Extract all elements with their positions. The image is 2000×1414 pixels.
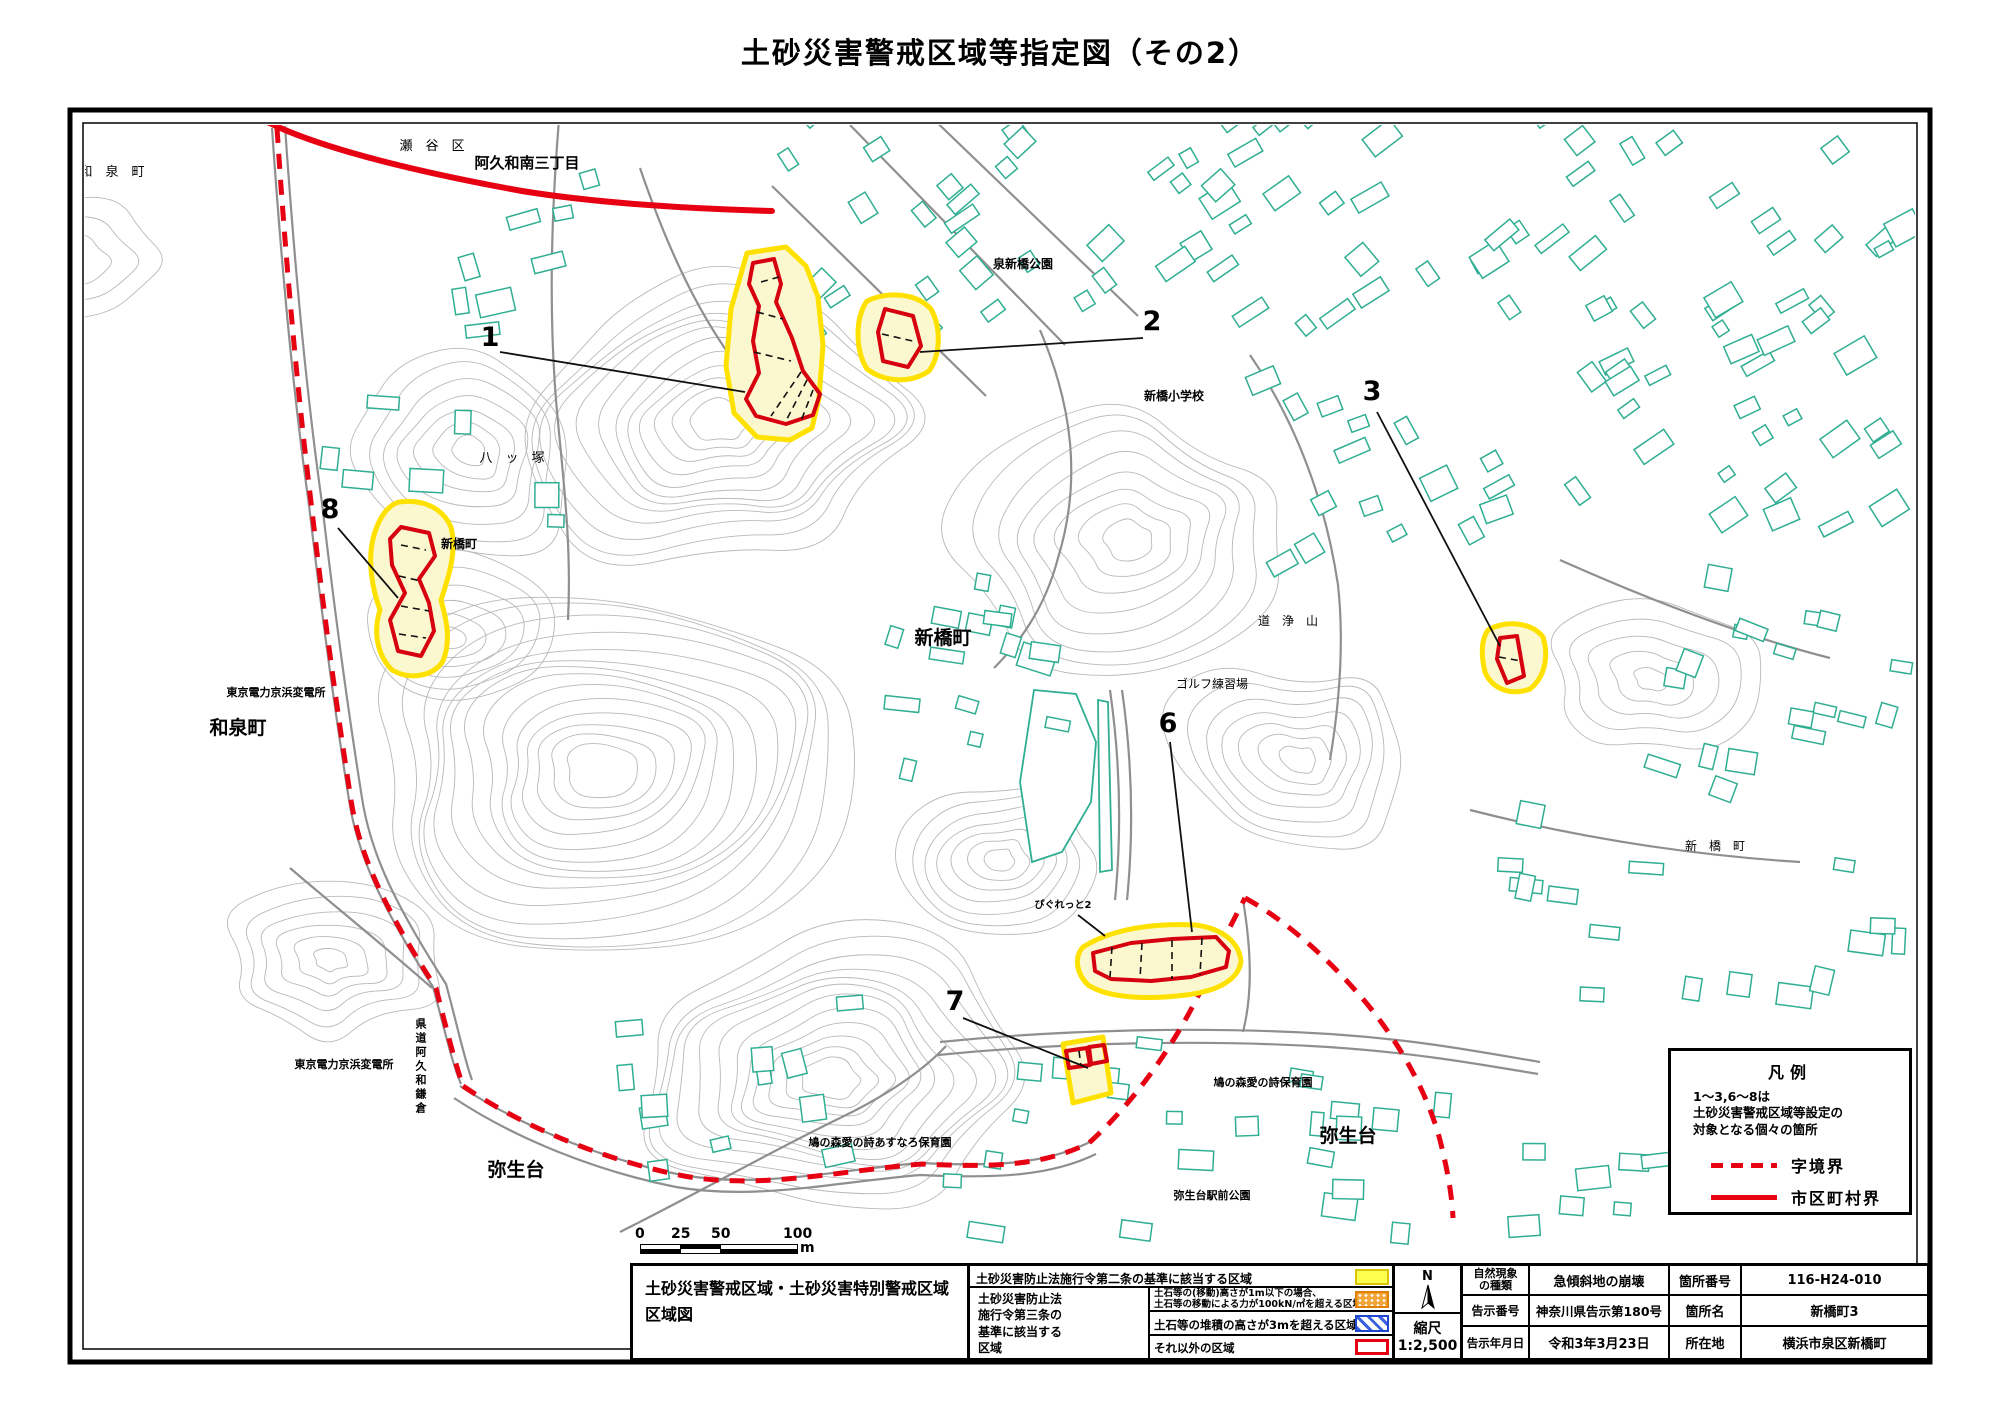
building-rect [1810,966,1835,995]
nat-phenomenon-value: 急傾斜地の崩壊 [1530,1266,1670,1296]
building-rect [1157,87,1180,110]
building-outline [1017,1062,1042,1081]
aza-boundary-sample [1711,1163,1777,1168]
building-rect [1734,396,1760,418]
contour-line [555,313,895,523]
building-rect [1817,610,1840,631]
site-name-value: 新橋町3 [1742,1296,1927,1327]
building-rect [1751,207,1780,233]
building-outline [1235,1116,1258,1136]
building-rect [1575,1165,1610,1190]
building-rect [1727,972,1752,997]
building-outline [1767,231,1795,256]
building-outline [1253,113,1278,136]
building-outline [981,299,1006,322]
building-outline [1148,157,1174,180]
building-outline [1295,315,1316,337]
building-rect [1498,858,1523,873]
contour-line [942,404,1279,675]
building-outline [974,573,990,591]
map-label-shinbashicho-east: 新 橋 町 [1685,838,1745,853]
building-outline [1566,161,1594,186]
contour-line [378,597,854,950]
info-table: 土砂災害警戒区域・土砂災害特別警戒区域 区域図 土砂災害防止法施行令第二条の基準… [630,1263,1930,1361]
building-outline [799,1094,826,1122]
building-outline [1682,976,1702,1001]
building-rect [1614,1202,1632,1216]
building-rect [1299,101,1328,128]
building-outline [1245,366,1280,395]
contour-line [968,840,1030,881]
building-rect [1228,138,1263,167]
hazard-zone-3 [1482,624,1545,692]
building-outline [641,1094,668,1118]
building-outline [1136,1037,1162,1051]
zone-marker-7: 7 [946,986,965,1017]
building-outline [884,695,920,712]
building-rect [367,395,400,410]
building-outline [1263,176,1301,211]
building-outline [1480,450,1502,472]
building-outline [1297,80,1329,112]
building-outline [1228,138,1263,167]
building-rect [1420,465,1458,501]
building-outline [1709,776,1737,803]
building-rect [1332,1179,1363,1199]
map-label-pigretto: ぴぐれっと2 [1035,898,1092,911]
building-outline [579,169,599,190]
notice-number-value: 神奈川県告示第180号 [1530,1296,1670,1327]
building-outline [983,610,1012,627]
building-rect [1320,191,1345,215]
building-outline [885,626,904,649]
building-rect [1535,224,1569,253]
building-rect [1564,126,1594,156]
building-rect [1718,466,1735,483]
contour-line [1017,451,1226,634]
building-rect [1334,437,1370,463]
building-outline [1820,420,1860,458]
building-outline [1416,261,1440,286]
contour-line [402,603,828,947]
building-outline [1391,1222,1410,1244]
map-label-akuwa-minami: 阿久和南三丁目 [474,154,579,172]
contour-line [246,896,419,1027]
contour-line [424,632,808,924]
building-rect [1813,702,1837,717]
building-outline [967,1221,1005,1242]
building-rect [1345,242,1379,276]
building-rect [476,287,516,317]
building-rect [1311,491,1337,516]
building-outline [1817,610,1840,631]
building-outline [911,201,936,227]
building-rect [1792,725,1826,744]
hazard-zone-1 [726,247,823,440]
building-rect [1710,183,1740,209]
building-rect [1351,182,1389,213]
road-line [1122,690,1131,900]
building-outline [1751,207,1780,233]
warning-area-polygon [726,247,823,440]
building-outline [1813,702,1837,717]
building-outline [1709,497,1748,533]
building-rect [1229,215,1251,234]
building-rect [1682,976,1702,1001]
north-label: N [1422,1269,1433,1284]
map-label-yayoidai-west: 弥生台 [487,1158,544,1181]
building-outline [1170,173,1191,193]
building-rect [553,205,574,221]
building-outline [1420,465,1458,501]
building-rect [1709,776,1737,803]
building-rect [1704,564,1732,591]
map-label-kendo-akuwa-kamakura: 県道阿久和鎌倉 [412,1018,428,1116]
building-rect [1515,873,1536,901]
building-outline [455,410,472,434]
site-number-value: 116-H24-010 [1742,1266,1927,1296]
map-label-izumicho-top: 和 泉 町 [79,164,144,180]
building-outline [1166,1111,1182,1124]
contour-line [294,937,368,984]
building-outline [1876,703,1898,728]
building-outline [1446,87,1470,110]
building-outline [531,251,566,274]
contour-line [984,849,1015,871]
building-rect [1774,643,1796,659]
map-label-hatonomori-nursery: 鳩の森愛の詩保育園 [1214,1075,1313,1089]
building-rect [1156,246,1196,281]
legend-title: 凡例 [1671,1059,1909,1083]
building-outline [1229,215,1251,234]
contour-line [753,1023,909,1126]
building-rect [1263,176,1301,211]
building-rect [884,695,920,712]
building-rect [955,696,979,714]
hazard-zone-8 [371,501,453,675]
building-rect [1508,1215,1540,1238]
building-rect [1317,396,1343,417]
building-outline [320,447,339,471]
building-rect [981,299,1006,322]
building-outline [1575,1165,1610,1190]
building-outline [943,1174,961,1188]
building-rect [1029,642,1060,663]
building-rect [1645,365,1671,385]
building-outline [1267,95,1306,132]
building-rect [1353,277,1389,308]
building-rect [799,1094,826,1122]
building-outline [535,483,559,508]
swatch-debris-height [1355,1315,1389,1332]
contour-line [484,674,734,872]
building-rect [1253,113,1278,136]
building-rect [782,1048,808,1078]
notice-date-header: 告示年月日 [1460,1327,1530,1358]
building-outline [1516,801,1545,829]
building-rect [1416,261,1440,286]
building-rect [1752,425,1773,446]
building-rect [1776,982,1814,1008]
building-rect [1630,302,1655,328]
building-outline [1564,126,1594,156]
building-rect [1245,366,1280,395]
zone-marker-6: 6 [1159,708,1178,739]
building-outline [342,470,374,490]
building-outline [1000,633,1021,658]
building-outline [1320,299,1355,329]
sheet-title-line2: 区域図 [645,1302,955,1328]
building-rect [1656,130,1682,155]
building-rect [1320,299,1355,329]
building-outline [476,287,516,317]
aza-boundary-label: 字境界 [1791,1153,1845,1177]
building-outline [1508,1215,1540,1238]
building-outline [1821,136,1849,164]
building-rect [1712,320,1729,337]
scale-value: 1:2,500 [1398,1338,1458,1354]
map-label-shinbashi-elementary: 新橋小学校 [1144,388,1205,403]
building-outline [1565,477,1591,506]
building-rect [1178,1149,1214,1170]
building-outline [1480,495,1514,524]
building-rect [615,1019,643,1037]
building-outline [1869,489,1909,526]
map-label-shinbashicho-center: 新橋町 [914,626,971,649]
building-rect [915,276,938,300]
building-rect [1307,1148,1334,1168]
building-outline [1776,289,1809,313]
building-rect [864,137,890,162]
contour-line [1187,683,1384,837]
building-outline [1523,1144,1545,1160]
building-rect [1523,1144,1545,1160]
building-outline [1351,182,1389,213]
building-rect [452,287,469,314]
building-rect [1634,429,1674,464]
building-rect [531,251,566,274]
building-outline [1776,982,1814,1008]
contour-line [450,661,777,889]
building-outline [929,647,964,664]
legend-law2-text: 土砂災害防止法施行令第二条の基準に該当する区域 [970,1266,1392,1287]
building-rect [1767,231,1795,256]
road-line [1243,900,1250,1032]
location-value: 横浜市泉区新橋町 [1742,1327,1927,1358]
building-rect [1589,924,1620,940]
hazard-zone-6 [1077,925,1241,998]
building-outline [1458,516,1484,544]
building-outline [1535,224,1569,253]
building-outline [1498,858,1523,873]
building-outline [1569,236,1606,271]
building-outline [1362,119,1402,157]
building-rect [899,758,916,781]
contour-line [0,197,162,321]
map-label-shinbashicho-nw: 新橋町 [441,536,477,551]
building-outline [1299,101,1328,128]
building-rect [911,201,936,227]
building-outline [1890,660,1913,674]
building-outline [1345,242,1379,276]
building-outline [452,287,469,314]
building-rect [579,169,599,190]
building-rect [1819,511,1854,537]
notice-number-header: 告示番号 [1460,1296,1530,1327]
golf-range-outline [1020,690,1096,862]
building-outline [1630,302,1655,328]
contour-line [802,1057,860,1099]
building-outline [1792,725,1826,744]
building-rect [1565,477,1591,506]
aza-boundary-line-southeast [1245,898,1453,1218]
contour-line [314,948,348,971]
building-outline [1704,564,1732,591]
building-rect [535,483,559,508]
building-rect [548,514,565,527]
building-rect [1017,1062,1042,1081]
scale-label: 縮尺 [1414,1318,1442,1338]
building-outline [1783,409,1802,426]
building-rect [929,647,964,664]
site-name-header: 箇所名 [1670,1296,1742,1327]
building-rect [1580,987,1604,1002]
map-legend-box: 凡例 1～3,6～8は 土砂災害警戒区域等設定の 対象となる個々の箇所 字境界 … [1668,1048,1912,1215]
building-rect [1092,267,1116,293]
contour-line [502,684,717,862]
building-outline [1232,297,1269,327]
building-rect [1566,161,1594,186]
building-rect [1207,255,1238,282]
building-outline [1838,711,1866,728]
contour-line [511,698,705,849]
site-number-header: 箇所番号 [1670,1266,1742,1296]
building-outline [836,995,863,1011]
road-line [1560,560,1830,658]
building-rect [995,157,1017,179]
building-outline [1610,194,1634,222]
scale-tick-0: 0 [635,1226,645,1242]
building-outline [751,1047,774,1072]
contour-line [1078,504,1170,577]
building-rect [1699,743,1718,769]
building-outline [409,468,444,492]
scale-bar: 0 25 50 100 m [628,1226,828,1260]
building-outline [1656,130,1682,155]
building-outline [915,276,938,300]
building-rect [506,209,540,230]
contour-line [1588,636,1719,718]
building-outline [1614,1202,1632,1216]
road-line [552,108,569,620]
nat-phenomenon-header-l2: の種類 [1479,1280,1512,1292]
leader-line-2 [920,338,1143,352]
building-outline [1580,987,1604,1002]
map-label-tepco-north: 東京電力京浜変電所 [227,685,326,699]
building-outline [1394,416,1418,444]
building-rect [1087,225,1124,262]
building-rect [1821,136,1849,164]
building-outline [548,514,565,527]
building-outline [1833,858,1855,873]
building-outline [1348,415,1370,433]
building-outline [553,205,574,221]
map-label-ekimae-park: 弥生台駅前公園 [1174,1188,1251,1202]
contour-line [1258,734,1331,784]
building-outline [1334,437,1370,463]
building-outline [1589,924,1620,940]
building-rect [1498,295,1521,320]
building-outline [1834,336,1877,375]
legend-law3-line1: 土砂災害防止法 [978,1291,1148,1307]
map-label-golf-range: ゴルフ練習場 [1176,676,1248,691]
leader-line-pigretto [1078,915,1105,936]
contour-line [1634,668,1668,691]
building-rect [1569,236,1606,271]
building-outline [864,137,890,162]
building-outline [1074,290,1095,311]
building-outline [1294,533,1324,563]
scale-tick-25: 25 [671,1226,690,1242]
building-rect [458,253,480,281]
building-outline [1142,91,1169,119]
building-rect [1362,119,1402,157]
building-rect [1876,703,1898,728]
building-rect [778,148,799,171]
building-outline [1629,861,1664,875]
building-outline [1774,643,1796,659]
building-outline [1029,642,1060,663]
map-label-tepco-south: 東京電力京浜変電所 [295,1057,394,1071]
building-outline [1485,219,1519,251]
building-rect [751,1047,774,1072]
building-outline [1320,191,1345,215]
zone-marker-8: 8 [321,494,340,525]
building-outline [1732,93,1757,120]
building-outline [1765,473,1797,503]
building-outline [615,1019,643,1037]
building-outline [968,731,983,747]
building-outline [1178,1149,1214,1170]
building-outline [1387,524,1407,542]
building-rect [1618,399,1640,419]
sheet-title-line1: 土砂災害警戒区域・土砂災害特別警戒区域 [645,1276,955,1302]
building-outline [1734,396,1760,418]
building-outline [931,606,961,628]
municipal-boundary-label: 市区町村界 [1791,1185,1881,1209]
building-outline [506,209,540,230]
building-outline [1618,399,1640,419]
building-outline [1311,491,1337,516]
building-rect [1869,489,1909,526]
map-label-izumicho-west: 和泉町 [209,716,266,739]
building-rect [836,995,863,1011]
building-rect [1232,297,1269,327]
building-outline [1359,496,1382,517]
building-rect [1516,801,1545,829]
building-rect [617,1064,634,1091]
building-rect [1166,1111,1182,1124]
building-outline [1810,966,1835,995]
leader-line-1 [500,352,745,392]
swatch-warning-area [1355,1269,1389,1285]
location-header: 所在地 [1670,1327,1742,1358]
building-outline [1484,475,1515,499]
swatch-debris-force [1355,1291,1389,1308]
map-label-asunaro-nursery: 鳩の森愛の詩あすなろ保育園 [809,1135,952,1149]
building-rect [1776,289,1809,313]
building-rect [1359,496,1382,517]
